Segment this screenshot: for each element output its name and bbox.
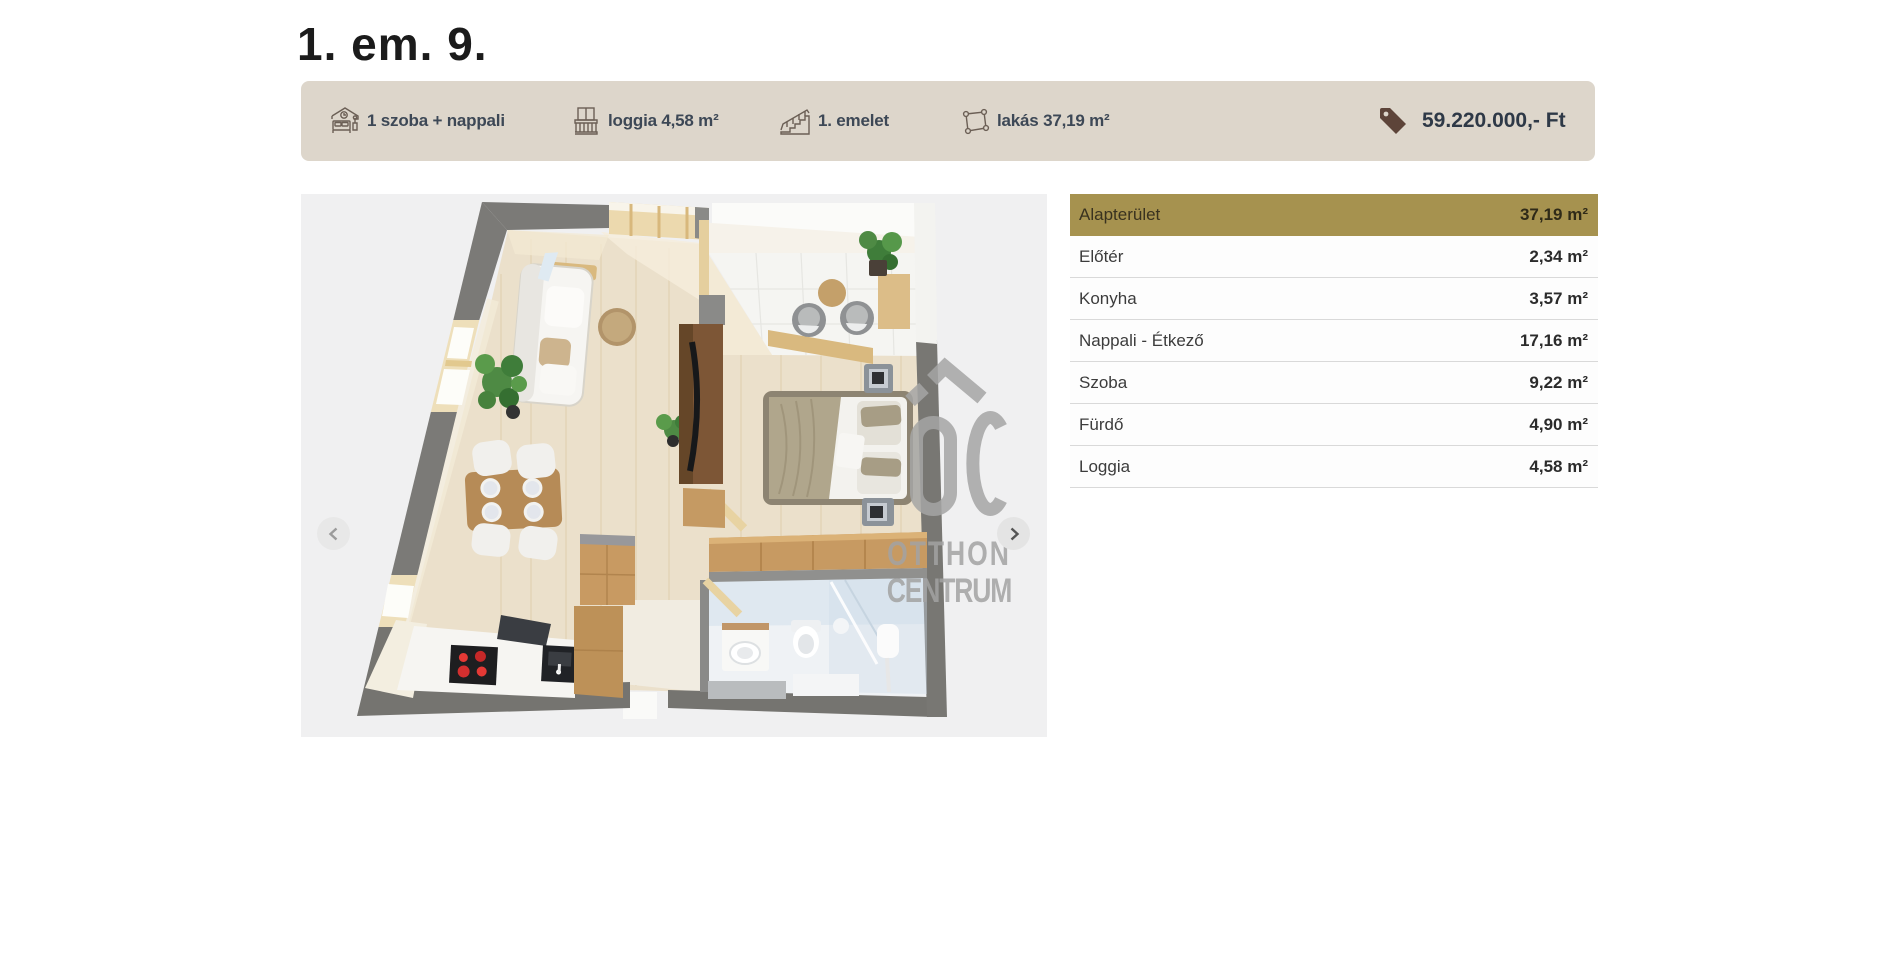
svg-text:CENTRUM: CENTRUM <box>887 572 1011 610</box>
svg-text:OTTHON: OTTHON <box>887 535 1011 573</box>
